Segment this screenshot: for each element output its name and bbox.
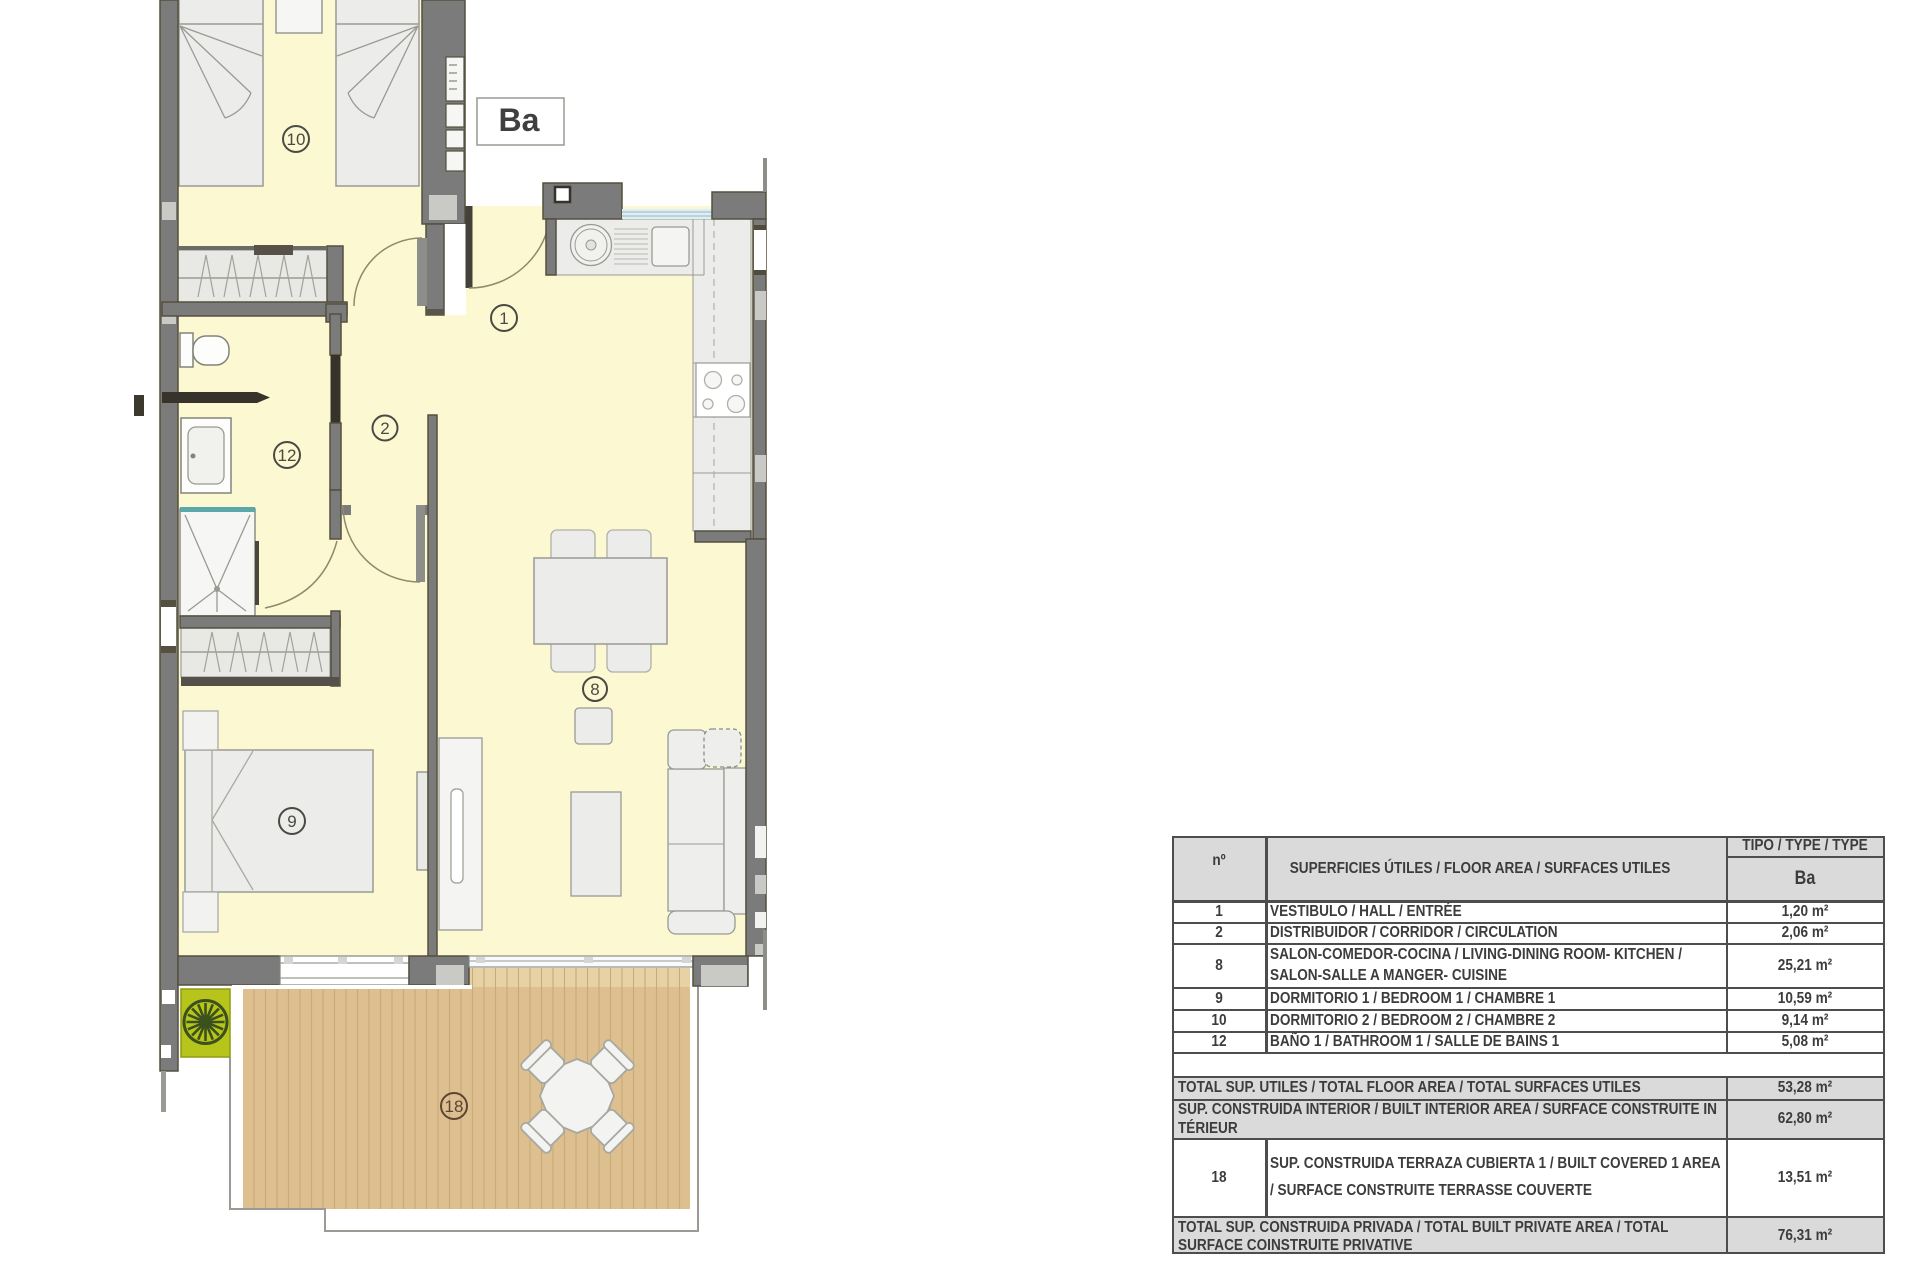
svg-text:18: 18 [445,1097,464,1116]
svg-text:12: 12 [278,446,297,465]
svg-text:8: 8 [590,680,599,699]
svg-text:9: 9 [287,812,296,831]
svg-text:2: 2 [380,419,389,438]
svg-text:1: 1 [499,309,508,328]
svg-text:10: 10 [287,130,306,149]
svg-text:Ba: Ba [499,102,540,138]
